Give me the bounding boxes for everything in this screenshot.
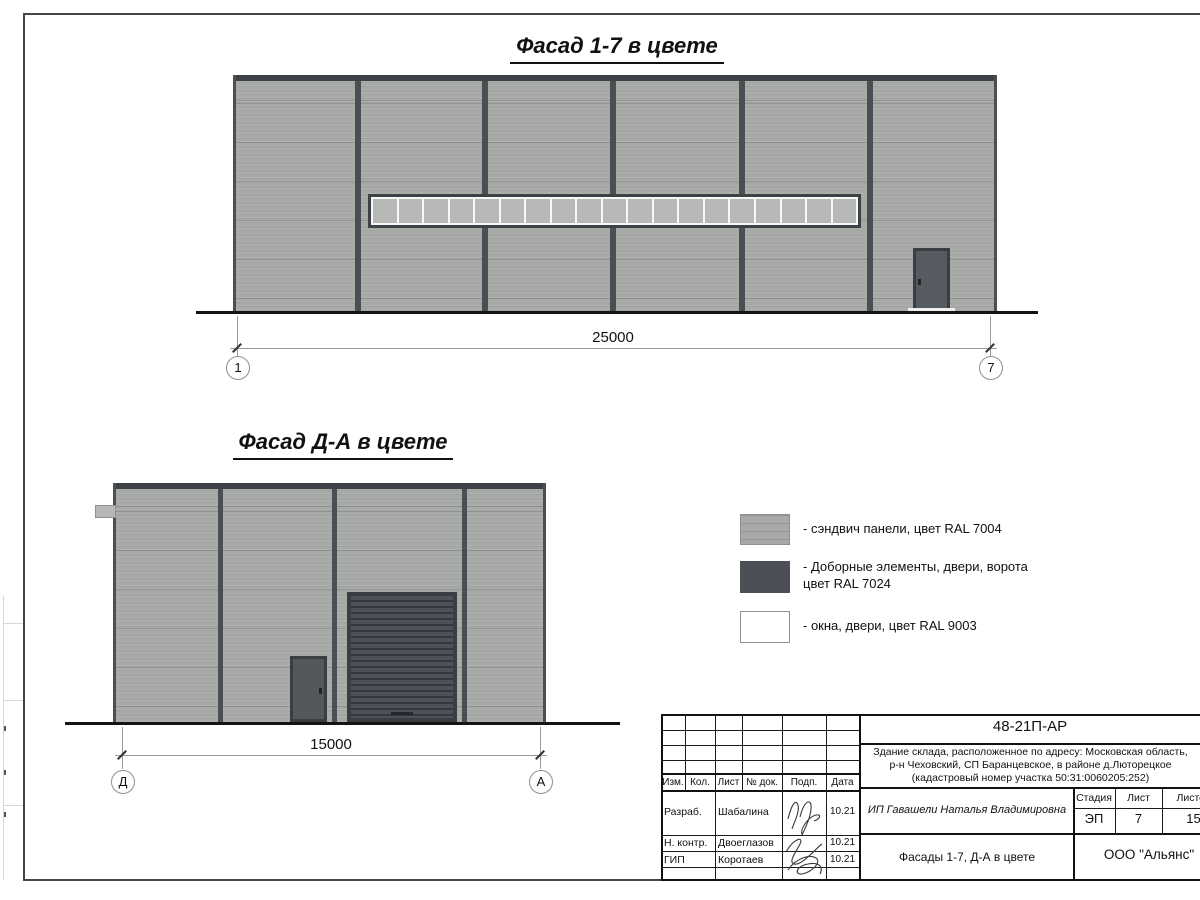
titleblock-description-line3: (кадастровый номер участка 50:31:0060205… <box>861 772 1200 784</box>
ground-line <box>65 722 620 725</box>
extension-line <box>237 316 238 358</box>
wall-joint <box>462 489 467 722</box>
titleblock-sheets-value: 15 <box>1162 813 1200 825</box>
extension-line <box>540 727 541 769</box>
dimension-line <box>115 755 547 756</box>
margin-stamp-line <box>3 623 23 624</box>
window-pane <box>424 199 448 223</box>
legend-swatch-trim-elements <box>740 561 790 593</box>
titleblock-role: Н. контр. <box>664 837 716 849</box>
legend-swatch-sandwich-panel <box>740 514 790 545</box>
titleblock-line <box>661 773 859 775</box>
axis-circle-1: 1 <box>226 356 250 380</box>
dimension-label-15000: 15000 <box>281 736 381 753</box>
titleblock-line <box>661 745 859 746</box>
titleblock-description-line2: р-н Чеховский, СП Баранцевское, в районе… <box>861 759 1200 771</box>
gutter-outlet <box>95 505 116 518</box>
titleblock-line <box>661 879 1200 881</box>
extension-line <box>990 316 991 358</box>
window-strip <box>368 194 861 228</box>
sheet-frame-left <box>23 13 25 881</box>
titleblock-role: ГИП <box>664 854 716 866</box>
titleblock-doc-title: Фасады 1-7, Д-А в цвете <box>861 851 1073 863</box>
window-pane <box>730 199 754 223</box>
titleblock-name: Двоеглазов <box>718 837 782 849</box>
titleblock-line <box>1073 808 1200 809</box>
legend-label-sandwich-panel: - сэндвич панели, цвет RAL 7004 <box>803 521 1123 537</box>
legend-label-trim-elements-line2: цвет RAL 7024 <box>803 576 1133 592</box>
margin-stamp-text-mark <box>4 770 6 775</box>
titleblock-document-code: 48-21П-АР <box>861 721 1199 733</box>
legend-label-windows-doors: - окна, двери, цвет RAL 9003 <box>803 618 1123 634</box>
signature-dvoeglazov-korotaev <box>782 834 828 880</box>
wall-joint <box>867 81 873 312</box>
ground-line <box>196 311 1038 314</box>
legend-swatch-windows-doors <box>740 611 790 643</box>
margin-stamp-text-mark <box>4 812 6 817</box>
margin-stamp-line <box>3 700 23 701</box>
titleblock-header-izm: Изм. <box>661 777 685 789</box>
axis-circle-d: Д <box>111 770 135 794</box>
titleblock-header-list: Лист <box>715 777 742 789</box>
wall-joint <box>332 489 337 722</box>
drawing-sheet: Фасад 1-7 в цвете 25000 1 7 Фасад Д-А в … <box>0 0 1200 900</box>
gate-handle <box>391 712 413 715</box>
titleblock-sheet-header: Лист <box>1115 792 1162 804</box>
window-pane <box>807 199 831 223</box>
margin-stamp-text-mark <box>4 726 6 731</box>
titleblock-header-ndok: № док. <box>742 777 782 789</box>
window-pane <box>705 199 729 223</box>
corner-trim-right <box>994 75 997 312</box>
titleblock-stage-value: ЭП <box>1073 813 1115 825</box>
titleblock-sheet-value: 7 <box>1115 813 1162 825</box>
window-pane <box>782 199 806 223</box>
titleblock-line <box>661 835 859 836</box>
titleblock-header-podp: Подп. <box>782 777 826 789</box>
corner-trim-left <box>233 75 236 312</box>
titleblock-role: Разраб. <box>664 806 714 818</box>
legend-label-trim-elements-line1: - Доборные элементы, двери, ворота <box>803 559 1133 575</box>
window-pane <box>603 199 627 223</box>
entry-door-facade-da <box>290 656 327 722</box>
titleblock-header-kol: Кол. <box>685 777 715 789</box>
titleblock-line <box>859 787 1200 789</box>
titleblock-line <box>661 851 859 852</box>
wall-joint <box>218 489 223 722</box>
dimension-line <box>230 348 997 349</box>
wall-joint <box>355 81 361 312</box>
titleblock-header-data: Дата <box>826 777 859 789</box>
window-pane <box>399 199 423 223</box>
titleblock-name: Коротаев <box>718 854 782 866</box>
margin-stamp-line <box>3 596 4 880</box>
window-pane <box>628 199 652 223</box>
facade-1-7-title-text: Фасад 1-7 в цвете <box>510 33 724 64</box>
entry-door-facade-1-7 <box>913 248 950 312</box>
margin-stamp-line <box>3 805 23 806</box>
titleblock-date: 10.21 <box>826 837 859 849</box>
window-pane <box>475 199 499 223</box>
window-pane <box>501 199 525 223</box>
titleblock-company: ООО "Альянс" <box>1075 849 1200 861</box>
sectional-gate <box>347 592 457 722</box>
window-pane <box>833 199 857 223</box>
door-handle <box>319 688 322 694</box>
titleblock-line <box>661 760 859 761</box>
facade-1-7-title: Фасад 1-7 в цвете <box>417 33 817 64</box>
extension-line <box>122 727 123 769</box>
titleblock-date: 10.21 <box>826 806 859 818</box>
window-pane <box>577 199 601 223</box>
door-handle <box>918 279 921 285</box>
corner-trim-right <box>543 483 546 722</box>
roof-coping <box>113 483 546 489</box>
titleblock-line <box>661 790 859 792</box>
window-pane <box>373 199 397 223</box>
titleblock-date: 10.21 <box>826 854 859 866</box>
sheet-frame-top <box>23 13 1200 15</box>
window-pane <box>552 199 576 223</box>
titleblock-name: Шабалина <box>718 806 780 818</box>
titleblock-stage-header: Стадия <box>1073 792 1115 804</box>
titleblock-line <box>661 730 859 731</box>
window-pane <box>450 199 474 223</box>
window-pane <box>679 199 703 223</box>
facade-da-title-text: Фасад Д-А в цвете <box>233 429 454 460</box>
signature-shabalina <box>784 793 826 837</box>
titleblock-line <box>661 867 859 868</box>
facade-1-7-elevation <box>233 75 997 312</box>
facade-da-title: Фасад Д-А в цвете <box>143 429 543 460</box>
titleblock-sheets-header: Листов <box>1162 792 1200 804</box>
window-pane <box>756 199 780 223</box>
titleblock-line <box>859 833 1200 835</box>
window-pane <box>654 199 678 223</box>
axis-circle-a: А <box>529 770 553 794</box>
titleblock-client: ИП Гавашели Наталья Владимировна <box>861 804 1073 816</box>
titleblock-line <box>859 743 1200 745</box>
titleblock-description-line1: Здание склада, расположенное по адресу: … <box>861 746 1200 758</box>
corner-trim-left <box>113 483 116 722</box>
titleblock-line <box>661 714 663 881</box>
window-pane <box>526 199 550 223</box>
axis-circle-7: 7 <box>979 356 1003 380</box>
dimension-label-25000: 25000 <box>563 329 663 346</box>
facade-da-elevation <box>113 483 546 722</box>
